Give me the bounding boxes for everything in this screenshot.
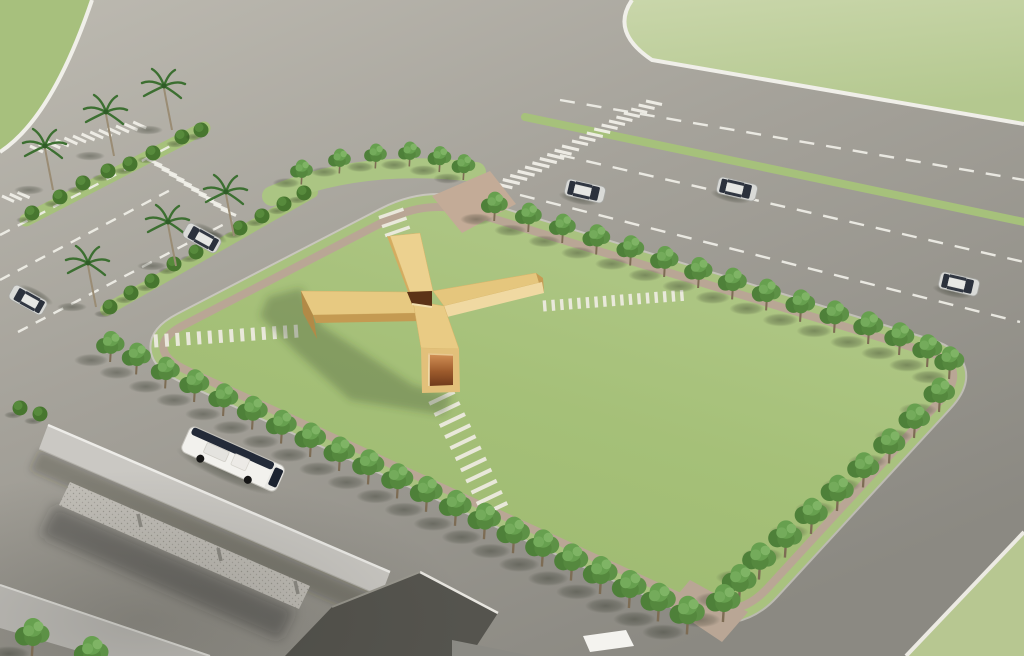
left-arm-roof — [301, 291, 419, 315]
bottom-arm-interior — [428, 354, 453, 386]
site-render-canvas — [0, 0, 1024, 656]
aerial-site-render — [0, 0, 1024, 656]
interior-rim-top — [428, 354, 453, 355]
